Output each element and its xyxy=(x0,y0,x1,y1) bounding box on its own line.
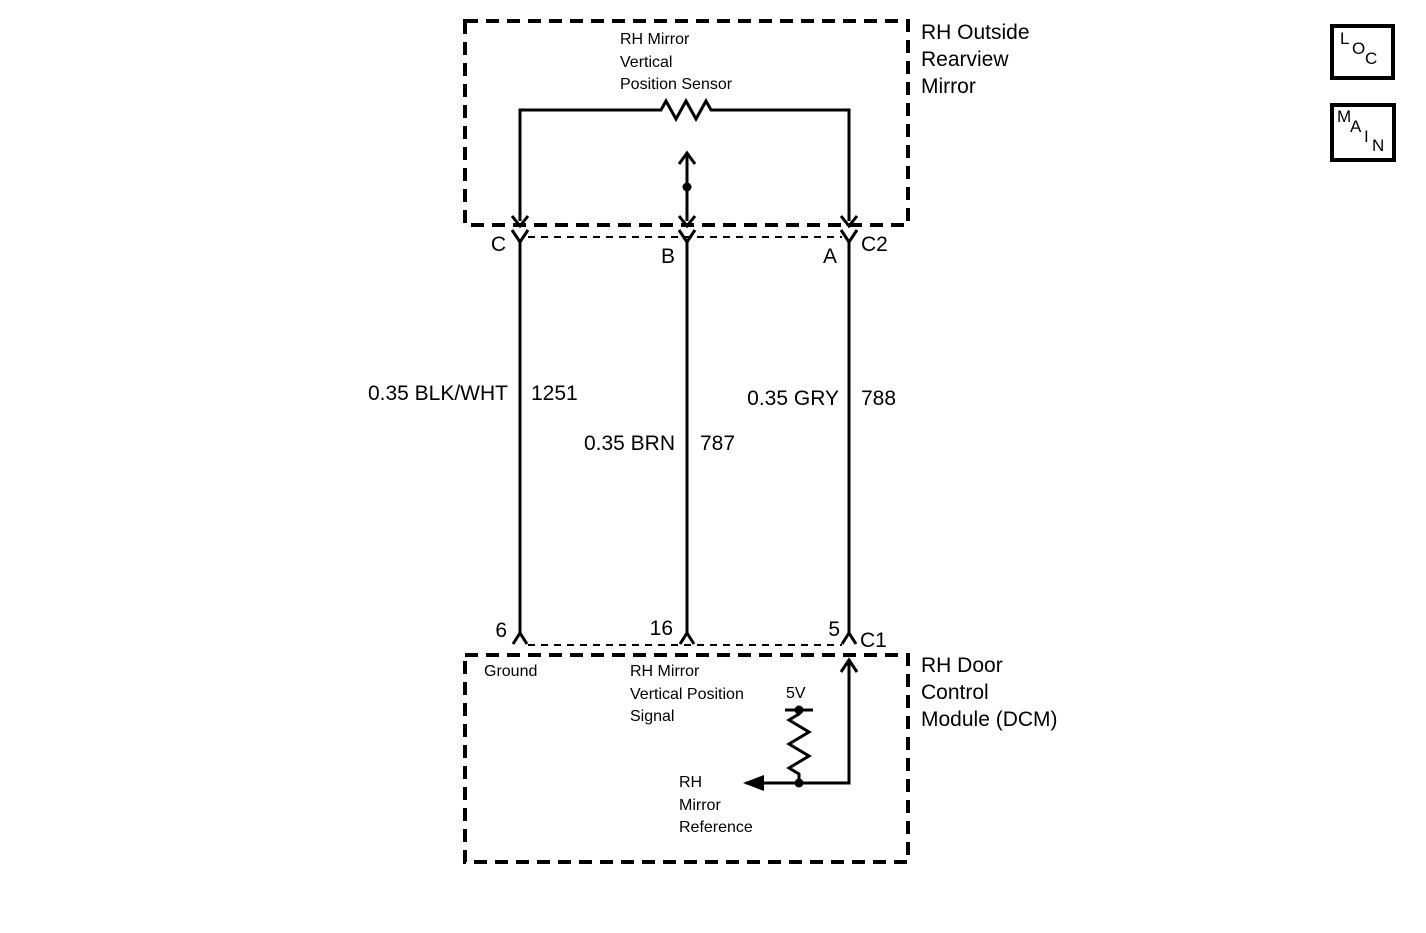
wire-circuit-787: 787 xyxy=(700,430,735,457)
connector-label-c2: C2 xyxy=(861,231,888,258)
mirror-box-title-line: Rearview xyxy=(921,46,1030,73)
reference-label-line: Reference xyxy=(679,817,753,840)
pin-16-plug-icon xyxy=(680,633,694,644)
pullup-resistor xyxy=(789,710,809,783)
main-button-letter: N xyxy=(1372,137,1384,154)
connector-label-c1: C1 xyxy=(860,627,887,654)
signal-label-line: Signal xyxy=(630,706,744,729)
position-sensor-resistor-circuit xyxy=(520,101,849,221)
reference-junction-dot xyxy=(795,779,804,788)
pin-a-socket-icon xyxy=(841,230,857,242)
wire-spec-gry: 0.35 GRY xyxy=(747,385,839,412)
dcm-box-title-line: RH Door xyxy=(921,652,1058,679)
signal-label-line: RH Mirror xyxy=(630,661,744,684)
wire-circuit-1251: 1251 xyxy=(531,380,578,407)
sensor-name-line: RH Mirror xyxy=(620,29,732,52)
signal-label: RH Mirror Vertical Position Signal xyxy=(630,661,744,729)
dcm-box-title-line: Control xyxy=(921,679,1058,706)
pin-label-5: 5 xyxy=(828,616,840,643)
wiper-contact-dot xyxy=(683,183,692,192)
signal-label-line: Vertical Position xyxy=(630,684,744,707)
supply-voltage-label: 5V xyxy=(786,683,806,706)
sensor-name-label: RH Mirror Vertical Position Sensor xyxy=(620,29,732,97)
loc-button-letter: O xyxy=(1352,40,1365,57)
pin-label-16: 16 xyxy=(650,615,673,642)
pin-label-c: C xyxy=(491,231,506,258)
pin-c-socket-icon xyxy=(512,230,528,242)
loc-button-letter: C xyxy=(1365,50,1377,67)
wire-spec-brn: 0.35 BRN xyxy=(584,430,675,457)
loc-button[interactable]: L O C xyxy=(1330,24,1395,80)
sensor-name-line: Position Sensor xyxy=(620,74,732,97)
pin-label-b: B xyxy=(661,243,675,270)
reference-label: RH Mirror Reference xyxy=(679,772,753,840)
ground-label: Ground xyxy=(484,661,537,684)
pin-label-a: A xyxy=(823,243,837,270)
loc-button-letter: L xyxy=(1340,30,1349,47)
main-button-letter: A xyxy=(1350,118,1361,135)
pin-6-plug-icon xyxy=(513,633,527,644)
reference-label-line: RH xyxy=(679,772,753,795)
wire-spec-blk-wht: 0.35 BLK/WHT xyxy=(368,380,508,407)
mirror-box-title-line: Mirror xyxy=(921,73,1030,100)
dcm-box-title: RH Door Control Module (DCM) xyxy=(921,652,1058,733)
main-button[interactable]: M A I N xyxy=(1330,103,1396,162)
wiring-diagram: RH Mirror Vertical Position Sensor RH Ou… xyxy=(0,0,1426,933)
sensor-name-line: Vertical xyxy=(620,52,732,75)
dcm-box-title-line: Module (DCM) xyxy=(921,706,1058,733)
mirror-box-title-line: RH Outside xyxy=(921,19,1030,46)
wire-circuit-788: 788 xyxy=(861,385,896,412)
mirror-box-title: RH Outside Rearview Mirror xyxy=(921,19,1030,100)
reference-label-line: Mirror xyxy=(679,795,753,818)
main-button-letter: I xyxy=(1364,128,1369,145)
pin-5-plug-icon xyxy=(842,633,856,644)
pin-label-6: 6 xyxy=(495,617,507,644)
